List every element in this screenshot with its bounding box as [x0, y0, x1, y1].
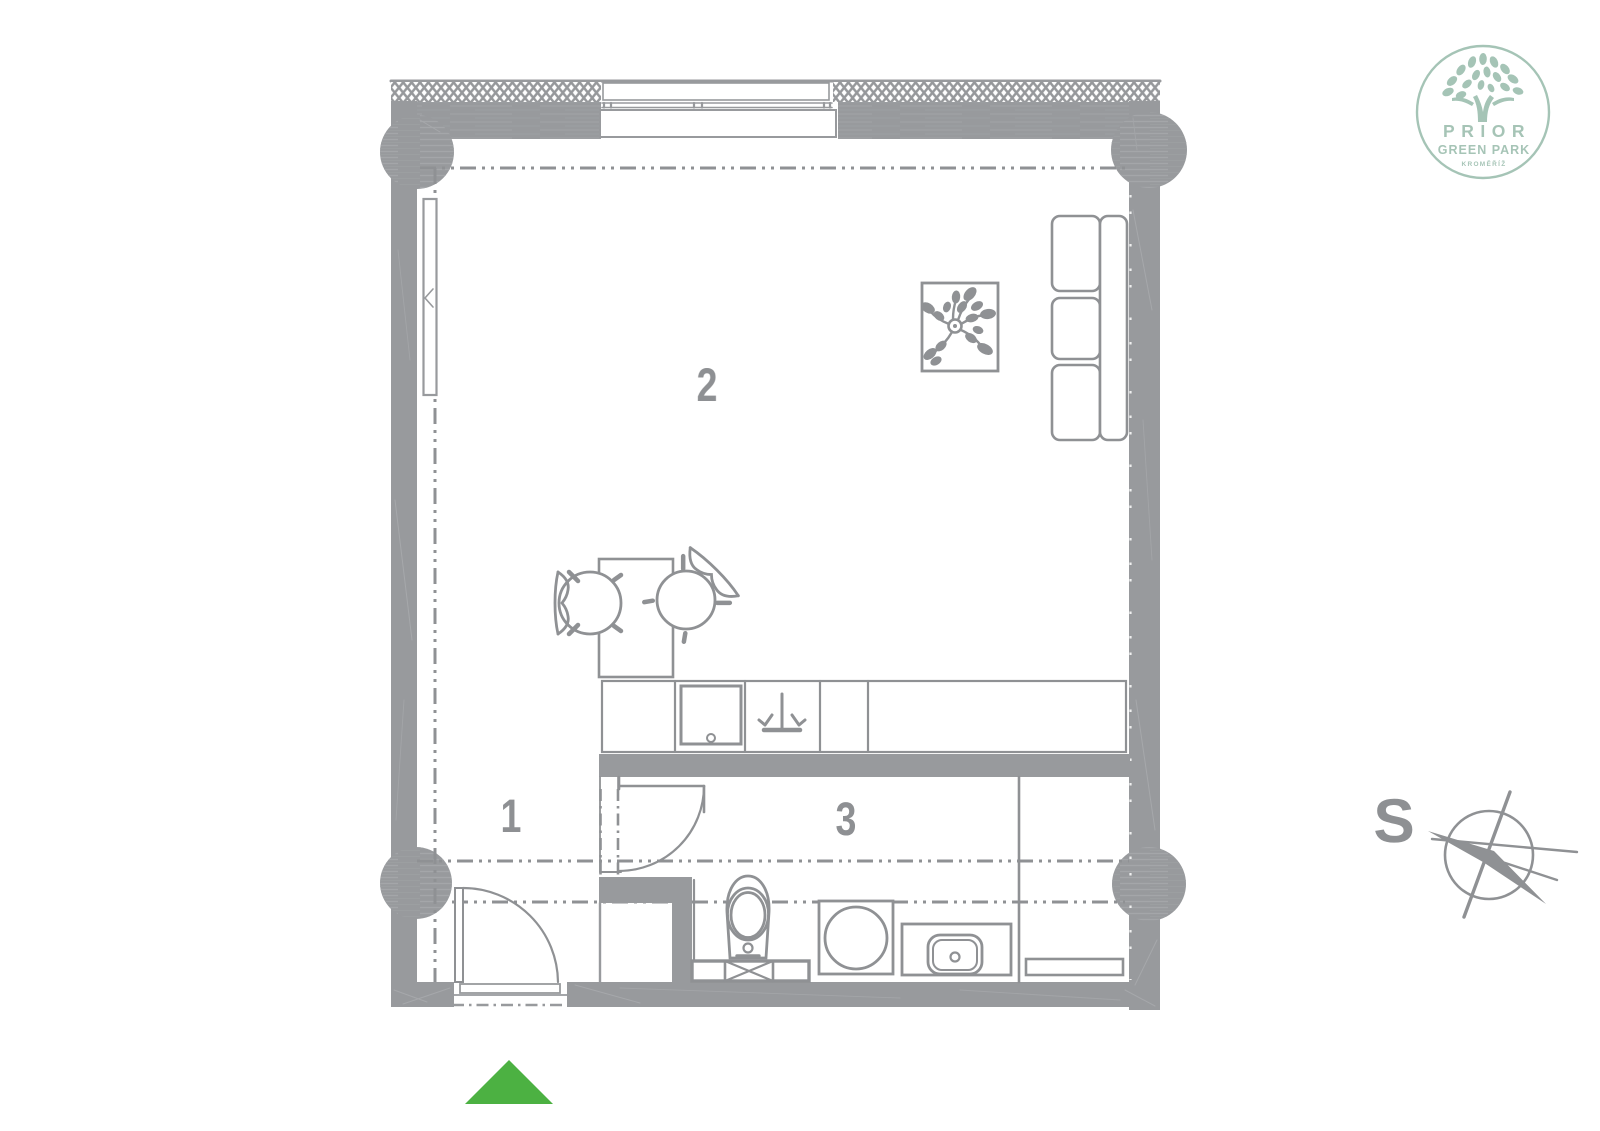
- svg-text:KROMĚŘÍŽ: KROMĚŘÍŽ: [1461, 159, 1506, 168]
- svg-text:GREEN PARK: GREEN PARK: [1438, 143, 1530, 157]
- svg-text:PRIOR: PRIOR: [1443, 121, 1531, 141]
- svg-text:3: 3: [836, 793, 857, 846]
- svg-text:2: 2: [697, 359, 718, 412]
- svg-text:S: S: [1373, 787, 1414, 856]
- svg-text:1: 1: [501, 790, 522, 843]
